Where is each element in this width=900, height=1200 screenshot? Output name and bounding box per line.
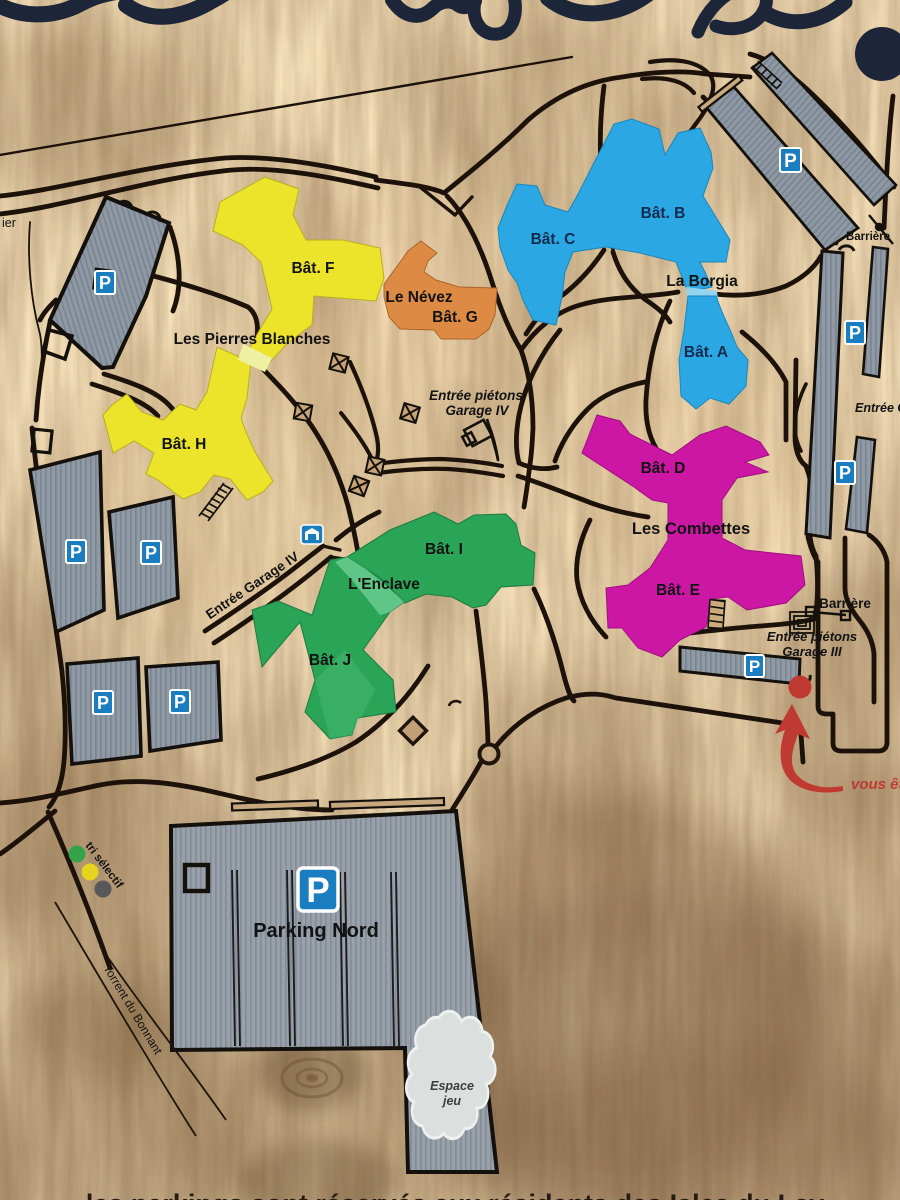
svg-text:Barrière: Barrière — [819, 596, 871, 611]
svg-text:P: P — [784, 151, 797, 172]
svg-text:P: P — [306, 871, 329, 910]
svg-text:Bât. B: Bât. B — [641, 205, 686, 222]
svg-text:P: P — [174, 692, 186, 712]
svg-text:jeu: jeu — [441, 1094, 461, 1108]
svg-text:L'Enclave: L'Enclave — [348, 576, 420, 593]
svg-text:vous ête: vous ête — [851, 776, 900, 793]
svg-text:ier: ier — [2, 216, 16, 230]
svg-text:les parkings sont réservés aux: les parkings sont réservés aux résidents… — [86, 1189, 824, 1200]
svg-text:Bât. I: Bât. I — [425, 541, 463, 558]
svg-text:Bât. C: Bât. C — [531, 231, 576, 248]
svg-text:P: P — [70, 542, 82, 562]
svg-text:Bât. G: Bât. G — [432, 309, 478, 326]
svg-text:Garage IV: Garage IV — [445, 403, 509, 418]
svg-text:Bât. A: Bât. A — [684, 344, 728, 361]
svg-text:Les Combettes: Les Combettes — [632, 520, 750, 538]
svg-text:Entrée piétons: Entrée piétons — [767, 629, 857, 644]
svg-text:P: P — [145, 543, 157, 563]
svg-text:P: P — [97, 693, 109, 713]
svg-text:Barrière: Barrière — [846, 231, 890, 243]
svg-text:Bât. J: Bât. J — [309, 652, 351, 669]
svg-text:P: P — [99, 273, 111, 293]
svg-text:Bât. E: Bât. E — [656, 582, 700, 599]
svg-text:Bât. F: Bât. F — [291, 260, 334, 277]
svg-text:Espace: Espace — [430, 1079, 474, 1093]
svg-text:P: P — [849, 323, 861, 343]
svg-text:Le Névez: Le Névez — [385, 289, 452, 306]
svg-text:Les Pierres Blanches: Les Pierres Blanches — [174, 331, 331, 348]
svg-text:Bât. H: Bât. H — [162, 436, 207, 453]
svg-text:P: P — [749, 657, 760, 676]
svg-text:La Borgia: La Borgia — [666, 273, 738, 290]
svg-text:Parking Nord: Parking Nord — [253, 920, 379, 942]
svg-text:Entrée Ga: Entrée Ga — [855, 401, 900, 415]
svg-text:Entrée piétons: Entrée piétons — [429, 388, 523, 403]
svg-text:Bât. D: Bât. D — [641, 460, 686, 477]
svg-text:Garage III: Garage III — [782, 644, 842, 659]
svg-text:P: P — [839, 463, 851, 483]
